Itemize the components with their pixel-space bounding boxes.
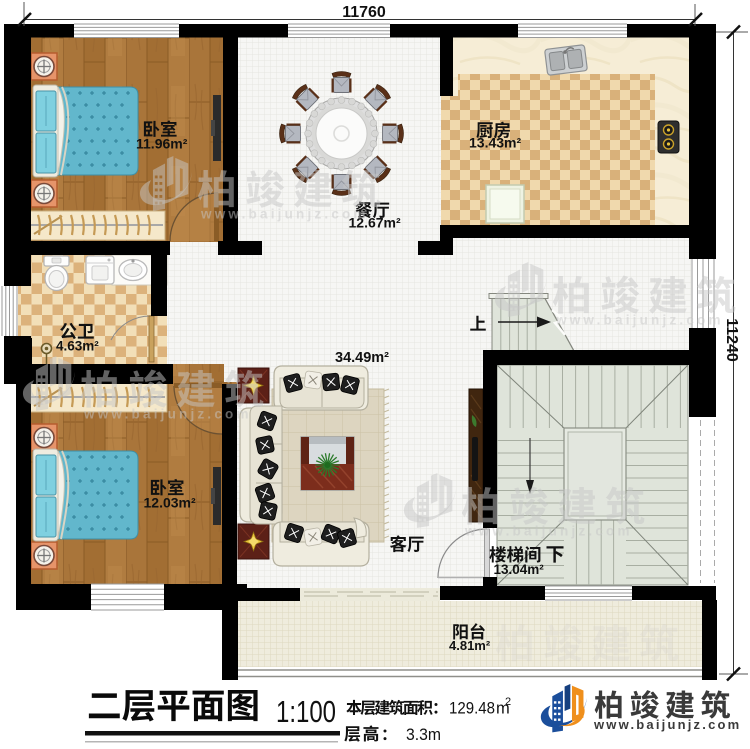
svg-text:1:100: 1:100 <box>276 694 336 729</box>
svg-text:13.04m²: 13.04m² <box>494 562 545 577</box>
svg-text:2: 2 <box>505 696 511 708</box>
svg-text:34.49m²: 34.49m² <box>335 350 389 366</box>
svg-text:www.baijunjz.com: www.baijunjz.com <box>200 207 369 222</box>
svg-text:4.63m²: 4.63m² <box>56 339 99 354</box>
svg-text:www.baijunjz.com: www.baijunjz.com <box>464 524 633 539</box>
svg-text:12.03m²: 12.03m² <box>144 495 196 511</box>
svg-text:www.baijunjz.com: www.baijunjz.com <box>593 717 741 732</box>
svg-text:4.81m²: 4.81m² <box>449 638 491 653</box>
svg-text:3.3m: 3.3m <box>406 725 441 744</box>
svg-text:13.43m²: 13.43m² <box>469 135 521 151</box>
svg-text:www.baijunjz.com: www.baijunjz.com <box>83 407 252 422</box>
svg-text:11.96m²: 11.96m² <box>136 136 188 152</box>
svg-text:129.48: 129.48 <box>449 700 495 718</box>
svg-text:11240: 11240 <box>723 318 740 362</box>
svg-text:www.baijunjz.com: www.baijunjz.com <box>555 313 724 328</box>
svg-text:11760: 11760 <box>342 4 386 21</box>
